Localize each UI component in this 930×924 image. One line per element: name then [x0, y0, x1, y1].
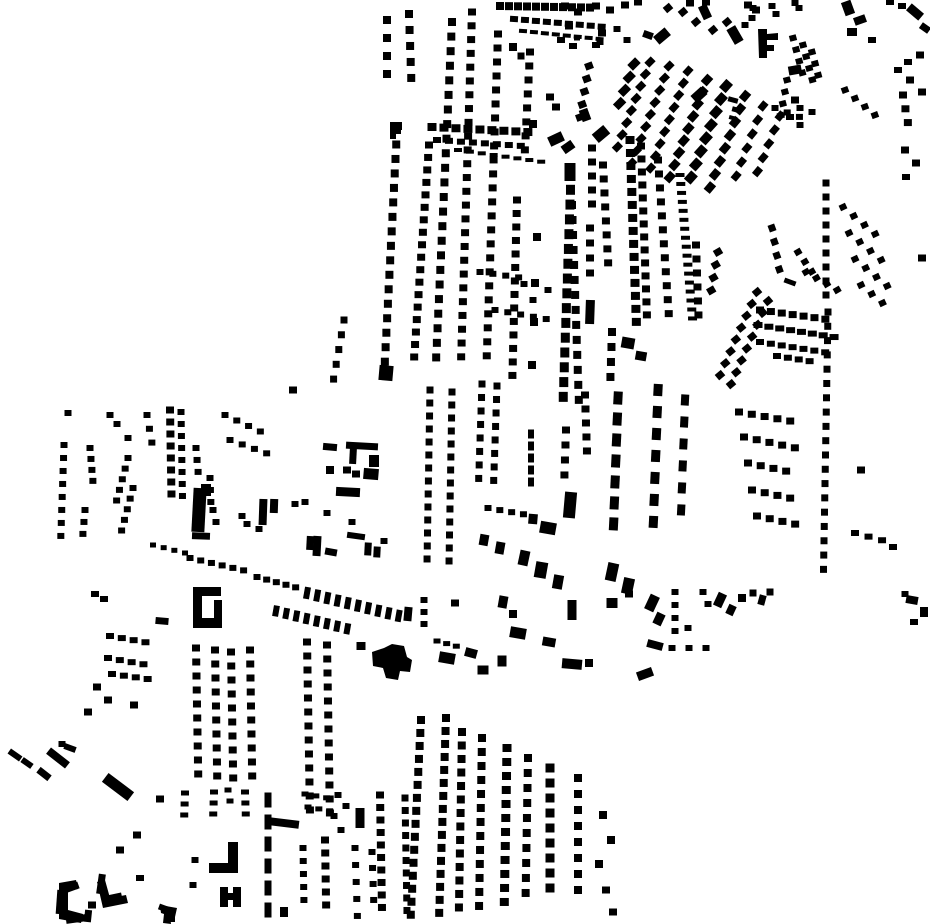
building — [424, 516, 431, 523]
building — [498, 595, 509, 608]
building — [167, 454, 175, 461]
building — [652, 612, 665, 627]
building — [282, 608, 290, 620]
building — [639, 194, 647, 201]
building — [246, 660, 254, 667]
building — [564, 229, 573, 239]
building — [588, 187, 596, 194]
building — [192, 645, 200, 652]
building — [405, 10, 413, 18]
building — [681, 394, 690, 405]
building — [343, 803, 350, 809]
building — [464, 647, 478, 659]
building-footprint-map — [0, 0, 930, 924]
building — [333, 620, 341, 632]
building — [426, 425, 433, 432]
building — [193, 445, 200, 451]
building — [775, 265, 784, 274]
building — [402, 807, 409, 814]
building — [592, 125, 611, 143]
building — [476, 846, 484, 854]
building — [503, 744, 512, 752]
building — [709, 168, 722, 181]
building — [748, 487, 756, 494]
building — [824, 323, 831, 330]
building — [477, 269, 484, 275]
building — [602, 887, 610, 894]
building — [543, 19, 551, 25]
building — [644, 594, 660, 613]
building — [422, 179, 430, 186]
building — [425, 451, 432, 458]
building — [537, 160, 545, 164]
building — [726, 379, 737, 390]
building — [441, 740, 449, 748]
building — [808, 331, 817, 337]
building — [476, 860, 484, 868]
building-complex — [209, 842, 238, 873]
building — [763, 296, 774, 307]
building — [167, 478, 175, 485]
building — [442, 149, 450, 157]
building — [677, 504, 686, 515]
building — [229, 760, 237, 767]
building — [649, 516, 659, 528]
building — [656, 184, 664, 191]
building — [546, 794, 555, 803]
building-complex — [193, 587, 222, 628]
building — [227, 437, 234, 443]
building — [447, 492, 454, 499]
building — [586, 240, 594, 247]
building — [385, 607, 393, 620]
building — [228, 704, 236, 711]
building — [673, 146, 686, 159]
building — [752, 166, 763, 177]
building — [265, 793, 272, 808]
building — [88, 902, 96, 909]
building — [560, 471, 568, 478]
building — [229, 565, 236, 571]
building — [391, 155, 399, 163]
building — [646, 639, 664, 651]
building — [621, 117, 632, 128]
building — [414, 304, 422, 311]
building — [796, 5, 803, 11]
building — [458, 326, 466, 333]
building — [303, 587, 311, 600]
building — [133, 832, 141, 839]
building — [477, 776, 485, 784]
building — [518, 550, 531, 567]
building — [300, 871, 307, 877]
building — [694, 297, 702, 304]
building — [193, 686, 201, 693]
building — [528, 478, 534, 487]
building — [612, 433, 622, 446]
building — [391, 169, 399, 177]
building — [546, 94, 554, 101]
building — [376, 816, 384, 823]
building — [248, 758, 256, 765]
building — [663, 171, 676, 184]
building — [722, 17, 733, 28]
building — [457, 139, 465, 145]
building — [181, 801, 189, 806]
building — [669, 645, 676, 651]
building — [554, 20, 562, 26]
building — [171, 548, 177, 553]
building — [392, 140, 400, 148]
building — [106, 633, 114, 639]
building — [443, 641, 450, 646]
building — [526, 49, 534, 56]
building — [820, 552, 827, 559]
building — [304, 708, 312, 715]
building — [580, 87, 590, 96]
building — [528, 442, 534, 451]
building — [857, 281, 866, 289]
building — [684, 170, 698, 184]
building — [292, 610, 300, 622]
building — [918, 255, 926, 262]
building — [210, 507, 217, 513]
building — [302, 499, 309, 505]
building — [525, 158, 533, 162]
building — [841, 0, 855, 16]
building — [381, 358, 389, 366]
building — [572, 321, 580, 329]
building — [322, 888, 330, 895]
building — [513, 156, 521, 160]
building — [720, 358, 731, 369]
building — [407, 74, 415, 82]
building — [823, 208, 830, 215]
building — [791, 444, 799, 451]
building — [672, 615, 679, 621]
building — [664, 296, 672, 303]
building — [192, 672, 200, 679]
building — [705, 601, 712, 607]
building — [871, 230, 880, 238]
building — [384, 300, 392, 308]
building — [354, 599, 362, 612]
building — [704, 181, 717, 194]
building — [481, 140, 489, 146]
building — [919, 22, 930, 33]
building — [304, 722, 312, 729]
building — [292, 501, 299, 507]
building — [421, 621, 428, 627]
building — [756, 339, 764, 345]
building — [786, 327, 795, 333]
building — [889, 544, 897, 550]
building — [703, 645, 710, 651]
building — [483, 338, 491, 345]
building — [773, 492, 781, 499]
building — [426, 399, 433, 406]
building — [403, 869, 410, 876]
building — [125, 455, 132, 461]
building — [121, 517, 128, 523]
building — [512, 237, 520, 244]
building — [523, 104, 531, 111]
building — [692, 242, 700, 249]
building — [744, 460, 752, 467]
building — [758, 152, 769, 163]
building — [434, 324, 442, 332]
building — [543, 316, 550, 322]
building — [488, 198, 496, 205]
building — [823, 194, 830, 201]
building — [574, 806, 582, 814]
building — [546, 839, 555, 848]
building — [512, 250, 520, 257]
building — [412, 807, 420, 815]
building — [739, 90, 752, 103]
building — [378, 904, 386, 911]
building — [510, 318, 518, 325]
building — [631, 292, 640, 300]
building — [511, 291, 519, 298]
building — [530, 297, 537, 303]
building — [364, 542, 372, 555]
building — [178, 457, 185, 463]
building — [241, 790, 249, 795]
building — [851, 530, 859, 536]
building — [634, 0, 642, 6]
building — [82, 507, 89, 513]
building — [741, 142, 752, 153]
building — [592, 42, 600, 48]
building — [445, 138, 453, 144]
building — [130, 702, 138, 709]
building — [904, 119, 912, 126]
building — [60, 468, 67, 474]
building — [711, 260, 721, 270]
building — [432, 353, 440, 361]
building — [369, 865, 376, 871]
building — [574, 381, 582, 389]
building — [626, 149, 635, 157]
building — [523, 799, 531, 807]
building — [477, 790, 485, 798]
building — [374, 604, 382, 617]
building — [179, 481, 186, 487]
building — [89, 478, 96, 484]
building — [588, 145, 596, 152]
building — [167, 466, 175, 473]
building — [493, 72, 501, 79]
building — [601, 203, 609, 210]
building — [325, 781, 333, 788]
building — [789, 344, 797, 350]
building — [610, 475, 620, 488]
building — [460, 257, 468, 264]
building — [823, 292, 830, 299]
building — [246, 674, 254, 681]
building — [821, 523, 828, 530]
building — [300, 884, 307, 890]
building — [685, 625, 692, 631]
building — [823, 394, 830, 401]
building — [458, 755, 466, 763]
building — [731, 170, 742, 181]
building — [809, 109, 816, 115]
building — [778, 442, 786, 449]
building — [456, 836, 464, 844]
building — [606, 373, 614, 381]
building — [525, 76, 533, 83]
building — [79, 531, 86, 537]
building — [440, 178, 448, 186]
building — [239, 513, 246, 519]
building — [652, 428, 662, 440]
building — [324, 683, 332, 690]
building — [447, 33, 455, 41]
building — [455, 876, 463, 884]
building — [411, 341, 419, 348]
building — [902, 591, 909, 597]
building — [378, 879, 386, 886]
building — [208, 560, 215, 566]
building — [899, 92, 907, 99]
building — [920, 607, 928, 617]
building-complex — [758, 29, 778, 58]
building — [552, 104, 560, 111]
building — [441, 753, 449, 761]
building — [566, 185, 575, 195]
building — [459, 284, 467, 291]
building — [599, 162, 607, 169]
building — [769, 465, 777, 472]
building — [725, 346, 736, 357]
building — [408, 885, 416, 893]
building — [467, 36, 475, 43]
building — [273, 579, 280, 585]
building — [746, 299, 757, 310]
building — [510, 304, 518, 311]
building — [178, 409, 185, 415]
building — [323, 795, 330, 800]
building — [245, 423, 252, 429]
building — [438, 831, 446, 839]
building — [552, 574, 564, 590]
building — [821, 509, 828, 516]
building — [305, 805, 312, 810]
building — [546, 824, 555, 833]
building — [614, 26, 621, 32]
building — [439, 805, 447, 813]
building — [561, 3, 569, 10]
building — [312, 536, 321, 556]
building — [765, 439, 773, 446]
building — [877, 256, 886, 264]
building — [415, 279, 423, 286]
building — [518, 53, 525, 60]
building — [178, 433, 185, 439]
building — [849, 212, 858, 220]
building — [419, 229, 427, 236]
building — [385, 271, 393, 279]
building — [799, 346, 807, 352]
building — [659, 226, 667, 233]
building — [402, 795, 409, 802]
building — [453, 644, 460, 649]
building — [389, 198, 397, 206]
building — [677, 191, 686, 195]
building — [808, 48, 816, 56]
building — [447, 466, 454, 473]
building — [305, 764, 313, 771]
building — [600, 189, 608, 196]
building — [532, 18, 540, 24]
building — [678, 460, 687, 471]
building — [487, 226, 495, 233]
building — [464, 133, 472, 140]
building — [402, 819, 409, 826]
building — [598, 30, 606, 37]
building — [409, 872, 417, 880]
building — [323, 592, 331, 605]
building — [532, 3, 540, 11]
building — [586, 225, 594, 232]
building — [484, 310, 492, 317]
building — [778, 310, 786, 317]
building — [438, 237, 446, 245]
building — [313, 615, 321, 627]
building — [598, 23, 606, 29]
building — [325, 767, 333, 774]
building — [542, 636, 556, 647]
building — [461, 215, 469, 222]
building — [406, 26, 414, 34]
building — [377, 829, 385, 836]
building — [627, 57, 640, 70]
building — [833, 286, 842, 295]
building — [574, 854, 582, 862]
building — [855, 238, 864, 246]
building — [782, 468, 790, 475]
building — [685, 281, 694, 285]
building — [354, 913, 361, 919]
building — [618, 84, 631, 97]
building — [446, 557, 453, 564]
building — [505, 2, 513, 10]
building — [531, 279, 539, 287]
building — [691, 17, 702, 28]
building — [630, 253, 639, 261]
building — [413, 316, 421, 323]
building — [280, 907, 288, 917]
building — [492, 423, 499, 430]
building — [387, 242, 395, 250]
building — [416, 729, 424, 737]
building — [436, 266, 444, 274]
building — [353, 879, 360, 885]
building — [724, 129, 737, 142]
building — [424, 503, 431, 510]
building — [229, 746, 237, 753]
building — [565, 200, 574, 210]
building — [686, 645, 693, 651]
building — [244, 521, 251, 527]
building — [912, 160, 920, 167]
building — [465, 105, 473, 112]
building — [528, 514, 538, 525]
building — [213, 772, 221, 779]
building — [845, 229, 854, 237]
